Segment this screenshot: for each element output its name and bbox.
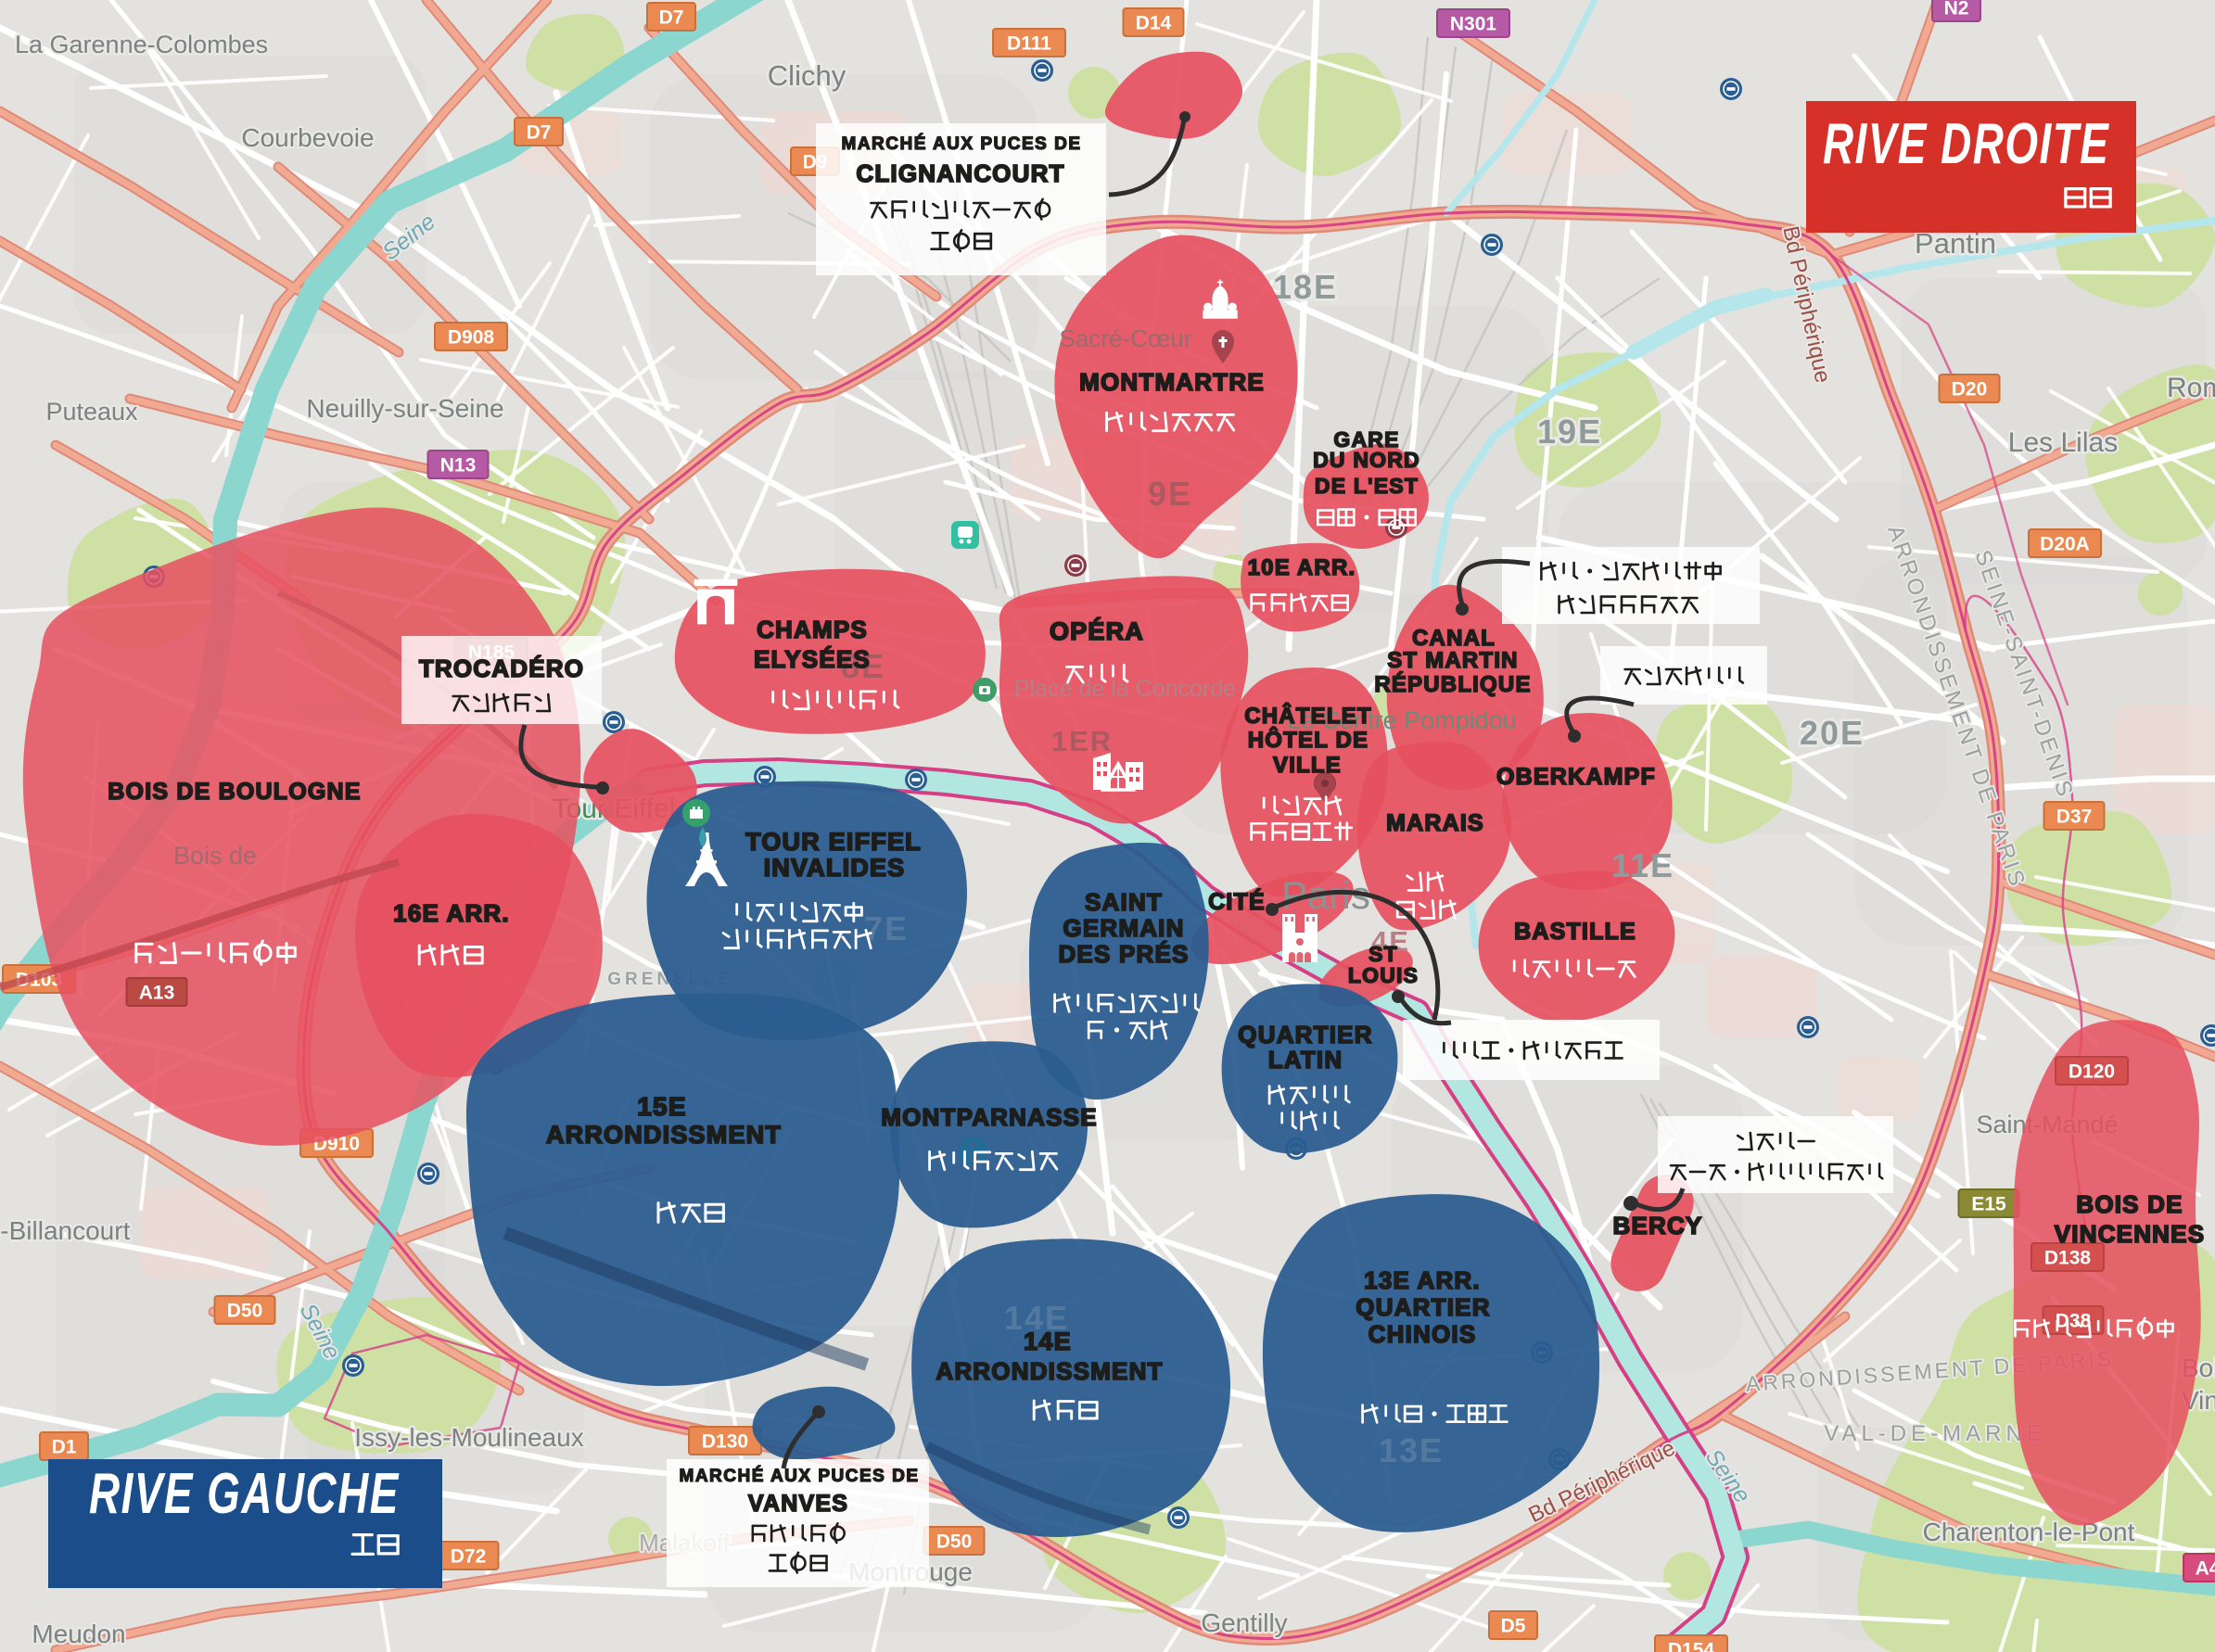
svg-text:Charenton-le-Pont: Charenton-le-Pont bbox=[1923, 1518, 2135, 1546]
svg-text:A4: A4 bbox=[2196, 1557, 2215, 1579]
svg-text:CHAMPS: CHAMPS bbox=[757, 616, 868, 643]
svg-text:DE L'EST: DE L'EST bbox=[1315, 474, 1419, 498]
svg-text:Les Lilas: Les Lilas bbox=[2008, 427, 2118, 458]
svg-text:D14: D14 bbox=[1136, 12, 1172, 33]
svg-text:A13: A13 bbox=[139, 982, 175, 1003]
svg-text:TROCADÉRO: TROCADÉRO bbox=[419, 654, 584, 682]
svg-text:Puteaux: Puteaux bbox=[45, 398, 138, 426]
svg-text:VILLE: VILLE bbox=[1273, 753, 1342, 778]
svg-text:D1: D1 bbox=[52, 1436, 77, 1457]
svg-text:D111: D111 bbox=[1007, 32, 1051, 54]
svg-text:CHINOIS: CHINOIS bbox=[1368, 1320, 1477, 1348]
svg-text:Rom: Rom bbox=[2167, 373, 2215, 403]
svg-text:D120: D120 bbox=[2069, 1061, 2115, 1082]
svg-text:15E: 15E bbox=[637, 1092, 686, 1121]
svg-text:ELYSÉES: ELYSÉES bbox=[754, 645, 871, 673]
svg-text:D20A: D20A bbox=[2040, 533, 2090, 554]
svg-text:BERCY: BERCY bbox=[1612, 1212, 1702, 1239]
svg-text:ARRONDISSMENT: ARRONDISSMENT bbox=[546, 1121, 782, 1149]
svg-text:Clichy: Clichy bbox=[768, 59, 847, 92]
svg-text:D154: D154 bbox=[1668, 1639, 1715, 1652]
svg-text:CHÂTELET: CHÂTELET bbox=[1244, 703, 1372, 729]
svg-text:Bois de: Bois de bbox=[173, 842, 257, 870]
svg-text:DES PRÉS: DES PRÉS bbox=[1058, 940, 1189, 968]
svg-text:SAINT: SAINT bbox=[1085, 888, 1163, 916]
svg-text:ST MARTIN: ST MARTIN bbox=[1387, 648, 1518, 673]
svg-text:BOIS DE BOULOGNE: BOIS DE BOULOGNE bbox=[108, 779, 361, 805]
svg-text:D7: D7 bbox=[659, 6, 684, 28]
svg-text:QUARTIER: QUARTIER bbox=[1238, 1021, 1372, 1048]
svg-text:D20: D20 bbox=[1952, 378, 1988, 400]
svg-text:GERMAIN: GERMAIN bbox=[1063, 914, 1184, 942]
svg-text:11E: 11E bbox=[1611, 846, 1674, 884]
svg-text:VINCENNES: VINCENNES bbox=[2055, 1220, 2206, 1248]
svg-text:13E ARR.: 13E ARR. bbox=[1364, 1266, 1481, 1294]
svg-text:CLIGNANCOURT: CLIGNANCOURT bbox=[856, 159, 1064, 187]
svg-text:D50: D50 bbox=[227, 1300, 263, 1321]
svg-text:RÉPUBLIQUE: RÉPUBLIQUE bbox=[1374, 671, 1531, 697]
svg-text:OBERKAMPF: OBERKAMPF bbox=[1496, 764, 1656, 790]
svg-text:N301: N301 bbox=[1450, 13, 1497, 34]
svg-text:ogne-Billancourt: ogne-Billancourt bbox=[0, 1216, 131, 1245]
svg-text:7E: 7E bbox=[864, 909, 909, 947]
svg-text:TOUR EIFFEL: TOUR EIFFEL bbox=[745, 828, 922, 856]
svg-text:19E: 19E bbox=[1537, 413, 1602, 451]
svg-text:ARRONDISSMENT: ARRONDISSMENT bbox=[936, 1357, 1163, 1385]
svg-text:D37: D37 bbox=[2056, 806, 2093, 827]
svg-text:HÔTEL DE: HÔTEL DE bbox=[1248, 727, 1369, 753]
svg-text:1ER: 1ER bbox=[1051, 725, 1113, 757]
svg-text:16E ARR.: 16E ARR. bbox=[393, 899, 510, 927]
svg-text:OPÉRA: OPÉRA bbox=[1050, 616, 1144, 645]
svg-text:D50: D50 bbox=[936, 1531, 973, 1552]
svg-text:D72: D72 bbox=[451, 1545, 487, 1567]
svg-text:QUARTIER: QUARTIER bbox=[1356, 1293, 1490, 1321]
svg-text:CANAL: CANAL bbox=[1412, 626, 1496, 651]
svg-text:D38: D38 bbox=[2056, 1310, 2092, 1331]
svg-text:Neuilly-sur-Seine: Neuilly-sur-Seine bbox=[306, 394, 503, 423]
svg-text:VANVES: VANVES bbox=[748, 1491, 848, 1517]
svg-text:10E ARR.: 10E ARR. bbox=[1248, 555, 1356, 580]
svg-text:Courbevoie: Courbevoie bbox=[241, 123, 374, 152]
svg-text:MARCHÉ AUX PUCES DE: MARCHÉ AUX PUCES DE bbox=[680, 1466, 920, 1486]
svg-text:N2: N2 bbox=[1944, 0, 1969, 19]
svg-text:D5: D5 bbox=[1501, 1615, 1526, 1636]
svg-text:D138: D138 bbox=[2044, 1247, 2092, 1268]
svg-text:MONTMARTRE: MONTMARTRE bbox=[1079, 368, 1265, 396]
svg-text:N13: N13 bbox=[440, 454, 477, 476]
svg-text:CITÉ: CITÉ bbox=[1208, 888, 1266, 915]
svg-text:9E: 9E bbox=[1148, 475, 1192, 513]
svg-text:Issy-les-Moulineaux: Issy-les-Moulineaux bbox=[354, 1423, 583, 1452]
svg-text:LATIN: LATIN bbox=[1268, 1046, 1343, 1074]
svg-text:14E: 14E bbox=[1024, 1328, 1072, 1355]
svg-text:20E: 20E bbox=[1800, 714, 1865, 752]
svg-text:13E: 13E bbox=[1379, 1431, 1444, 1469]
svg-text:E15: E15 bbox=[1971, 1193, 2006, 1214]
svg-text:D908: D908 bbox=[448, 326, 495, 348]
svg-text:DU NORD: DU NORD bbox=[1313, 448, 1420, 472]
svg-text:Sacré-Cœur: Sacré-Cœur bbox=[1059, 324, 1191, 352]
svg-text:D130: D130 bbox=[702, 1430, 748, 1452]
svg-text:BASTILLE: BASTILLE bbox=[1514, 919, 1636, 945]
svg-text:RIVE GAUCHE: RIVE GAUCHE bbox=[89, 1461, 400, 1525]
svg-text:MARCHÉ AUX PUCES DE: MARCHÉ AUX PUCES DE bbox=[842, 133, 1082, 154]
svg-text:D7: D7 bbox=[527, 121, 552, 143]
svg-text:MONTPARNASSE: MONTPARNASSE bbox=[881, 1103, 1097, 1131]
svg-text:VAL-DE-MARNE: VAL-DE-MARNE bbox=[1824, 1421, 2046, 1446]
svg-text:Gentilly: Gentilly bbox=[1201, 1608, 1287, 1637]
svg-text:LOUIS: LOUIS bbox=[1348, 963, 1419, 987]
svg-text:La Garenne-Colombes: La Garenne-Colombes bbox=[15, 31, 268, 58]
svg-text:BOIS DE: BOIS DE bbox=[2076, 1190, 2183, 1218]
svg-text:18E: 18E bbox=[1273, 268, 1338, 306]
svg-text:Meudon: Meudon bbox=[32, 1620, 125, 1648]
svg-text:RIVE DROITE: RIVE DROITE bbox=[1823, 111, 2109, 175]
svg-text:MARAIS: MARAIS bbox=[1386, 810, 1484, 836]
svg-text:INVALIDES: INVALIDES bbox=[764, 854, 906, 882]
